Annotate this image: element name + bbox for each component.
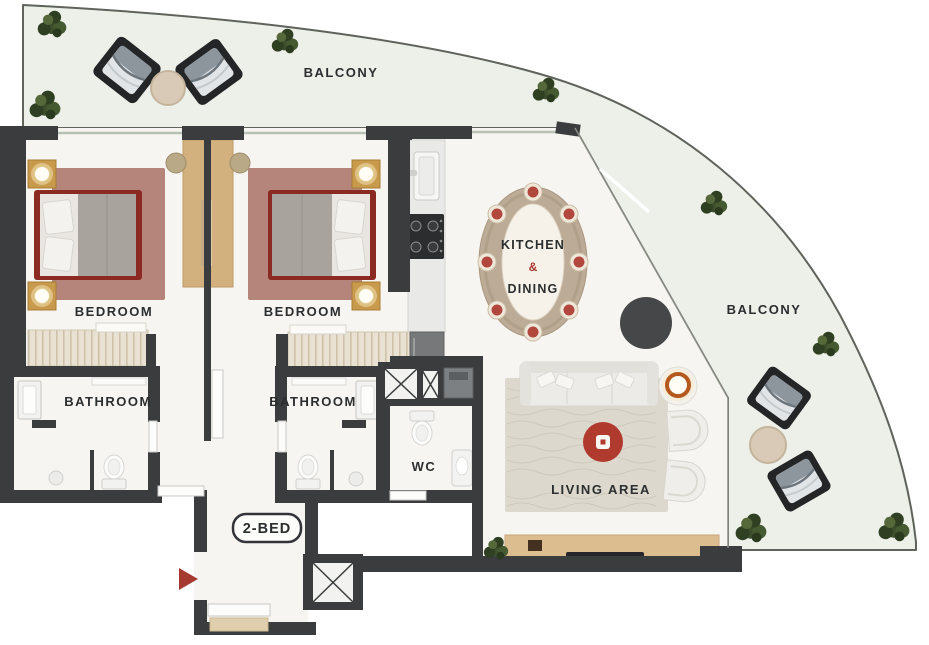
bedroom-1 <box>28 160 165 366</box>
lamp-icon <box>35 167 50 182</box>
label-bedroom-left: BEDROOM <box>75 304 153 319</box>
shaft-cross-icon <box>384 368 418 400</box>
stove-icon <box>405 214 444 259</box>
door-leaf <box>149 421 157 452</box>
entrance-door-leaf <box>208 604 270 616</box>
door-leaf <box>278 421 286 452</box>
balcony-table <box>151 71 185 105</box>
label-bathroom-left: BATHROOM <box>64 394 152 409</box>
desk-chair <box>166 153 186 173</box>
label-kitchen: KITCHEN <box>501 238 565 252</box>
door-leaf <box>390 491 426 500</box>
towel-shelf <box>92 378 146 385</box>
round-table-dark <box>620 297 672 349</box>
door-leaf <box>158 486 204 496</box>
balcony-table <box>750 427 786 463</box>
label-balcony-right: BALCONY <box>727 302 802 317</box>
label-balcony-top: BALCONY <box>304 65 379 80</box>
toilet-icon <box>102 455 126 489</box>
pillow <box>42 236 74 271</box>
toilet-icon <box>296 455 320 489</box>
floor-lamp-icon <box>667 374 689 396</box>
entry-mat <box>210 618 268 631</box>
pillow <box>42 199 74 234</box>
door-leaf <box>212 370 223 438</box>
lamp-icon <box>359 167 374 182</box>
kitchen <box>405 140 445 368</box>
toilet-icon <box>410 411 434 445</box>
label-wc: WC <box>412 459 437 474</box>
lamp-icon <box>359 289 374 304</box>
shower-drain-icon <box>349 472 363 486</box>
label-dining: DINING <box>508 282 559 296</box>
shaft-cross-icon <box>422 370 439 399</box>
pillow <box>334 236 366 271</box>
shaft-cross-icon <box>312 562 354 603</box>
unit-type-badge: 2-BED <box>233 514 301 542</box>
lamp-icon <box>35 289 50 304</box>
glass-lines <box>58 132 575 133</box>
wardrobe <box>28 330 148 366</box>
desk-chair <box>230 153 250 173</box>
shower-drain-icon <box>49 471 63 485</box>
floor-plan: 2-BED BALCONY BALCONY BEDROOM BEDROOM BA… <box>0 0 929 645</box>
shelf <box>290 325 346 334</box>
label-kitchen-amp: & <box>529 260 538 274</box>
label-bathroom-right: BATHROOM <box>269 394 357 409</box>
label-bedroom-right: BEDROOM <box>264 304 342 319</box>
floor-plan-canvas: 2-BED BALCONY BALCONY BEDROOM BEDROOM BA… <box>0 0 929 645</box>
label-living-area: LIVING AREA <box>551 482 651 497</box>
towel-shelf <box>292 378 346 385</box>
console-item <box>528 540 542 551</box>
shelf <box>96 323 146 332</box>
unit-type-label: 2-BED <box>243 521 292 537</box>
pillow <box>334 199 366 234</box>
